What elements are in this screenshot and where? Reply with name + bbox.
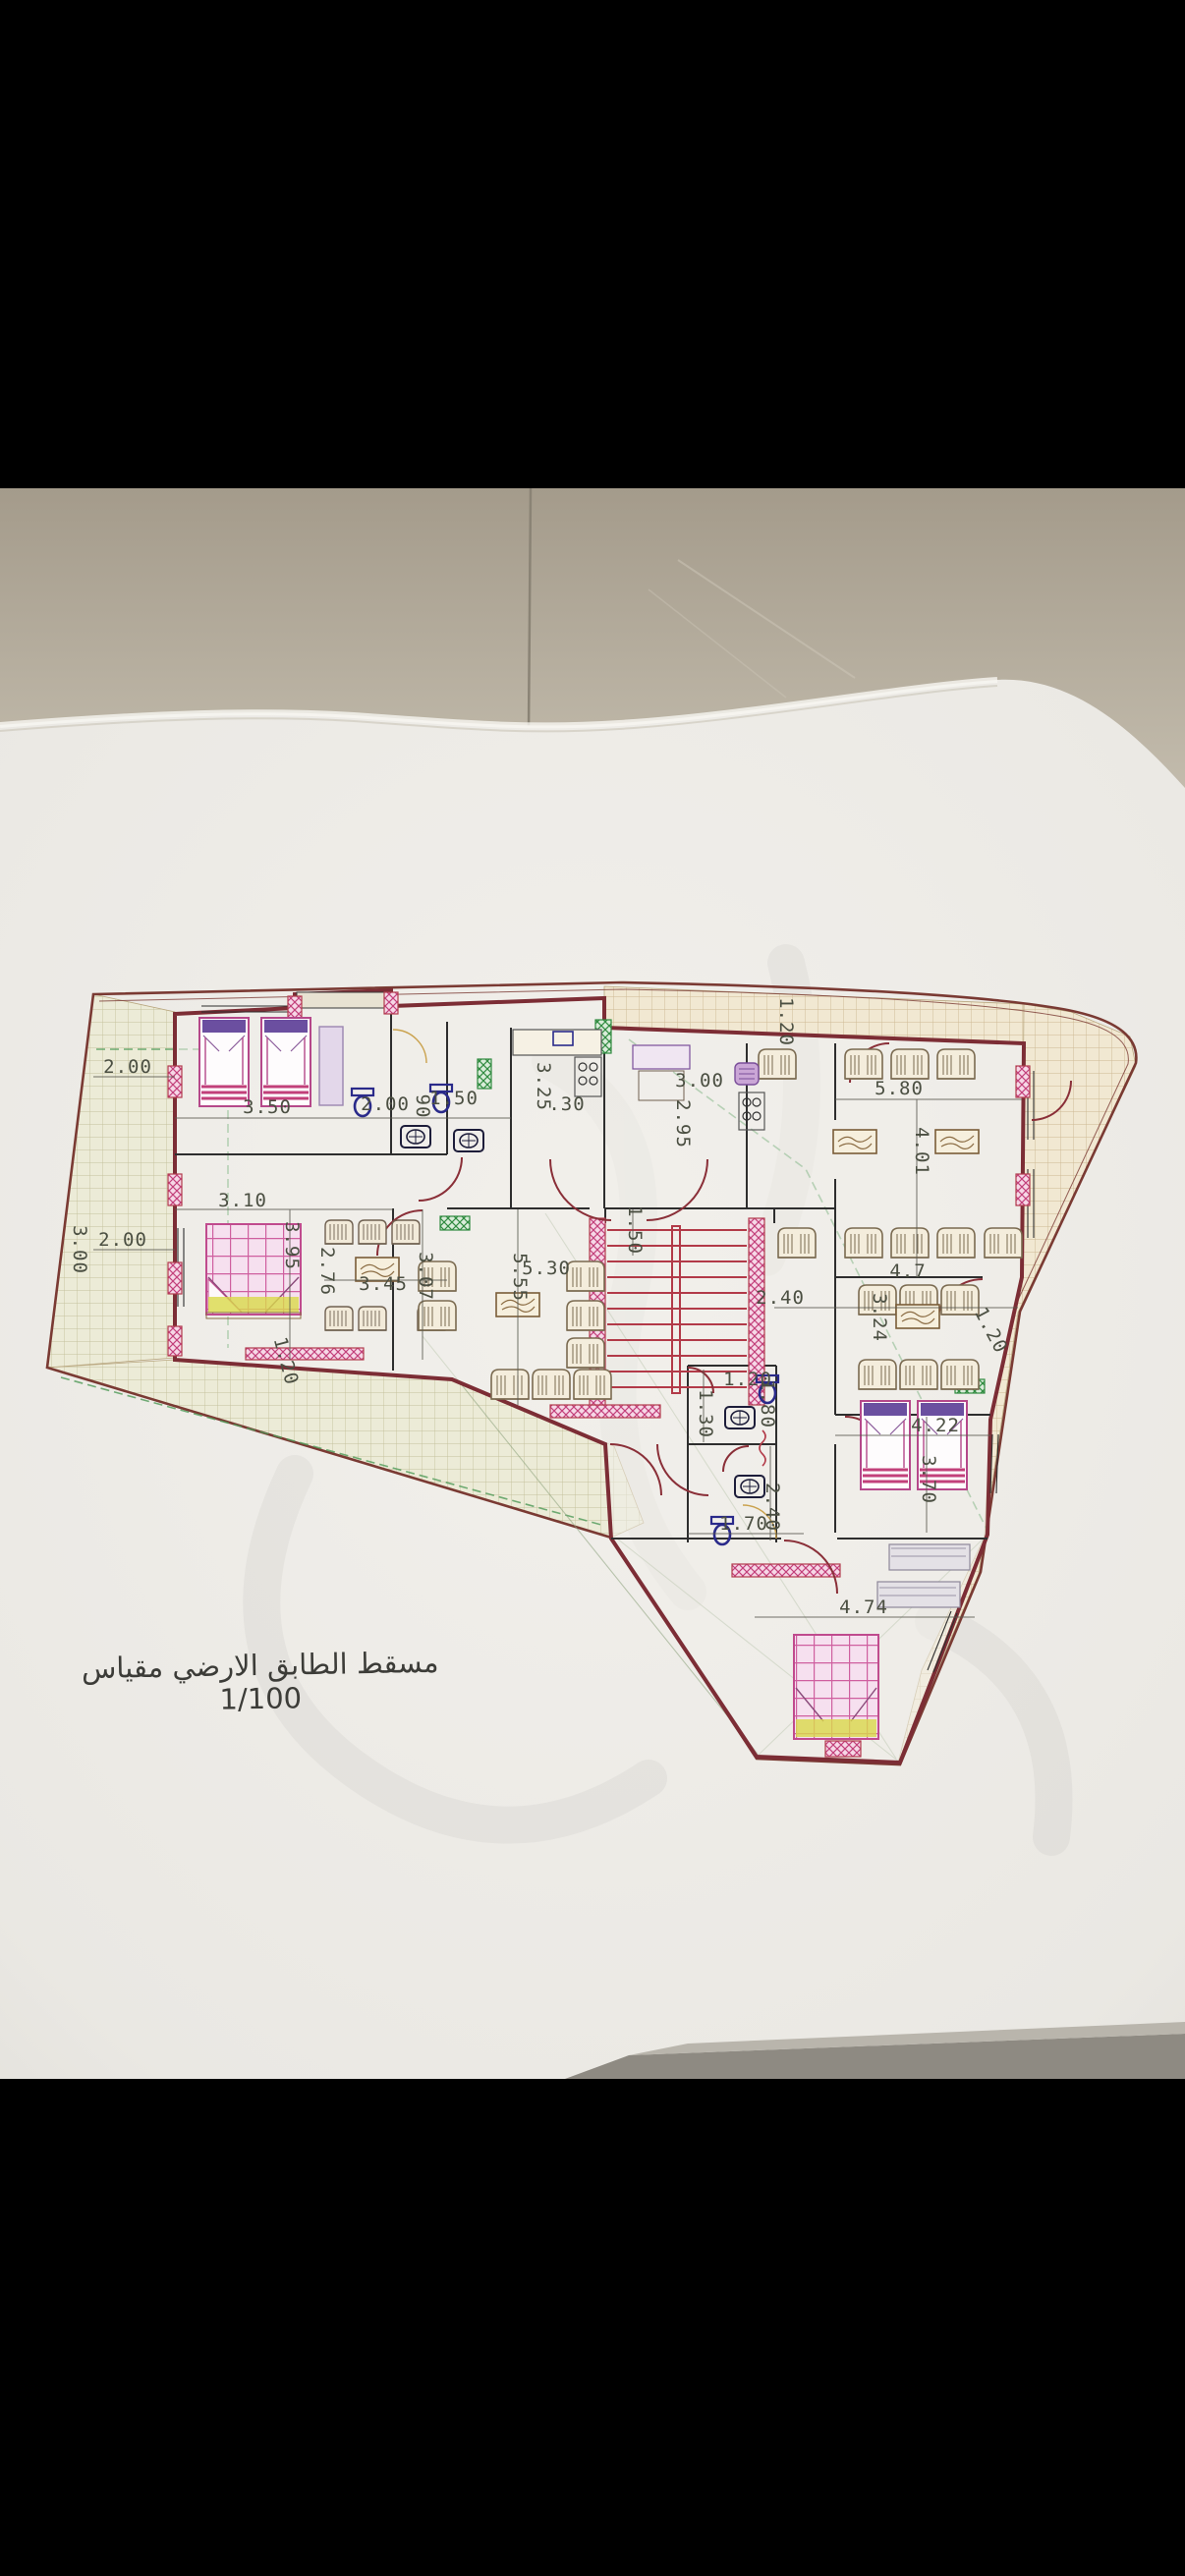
dimension-label: .30 [548,1093,585,1115]
plan-caption: مسقط الطابق الارضي مقياس 1/100 [48,1645,472,1718]
dimension-label: 5.80 [875,1078,924,1099]
bedroom-top-left [199,1018,343,1106]
dimension-label: 3.24 [869,1293,890,1342]
dimension-label: 1.50 [429,1088,479,1109]
dimension-label: 2.40 [756,1287,805,1309]
dimension-label: 3.10 [218,1190,267,1211]
dimension-label: 4.74 [839,1596,888,1618]
dimension-label: 3.70 [918,1455,939,1504]
entry-niche [297,992,389,1008]
dimension-label: 3.50 [243,1096,292,1118]
dimension-label: 1.20 [775,997,797,1046]
dimension-label: 3.45 [359,1273,408,1295]
phone-screenshot: 2.002.003.003.502.00901.503.25.303.002.9… [0,0,1185,2576]
dimension-label: 1.30 [695,1389,716,1438]
dimension-label: 4.7 [889,1260,926,1282]
dimension-label: 1.50 [624,1205,646,1255]
office-nook [735,1063,759,1085]
dimension-label: 4.22 [911,1415,960,1436]
dimension-label: 2.00 [98,1229,147,1251]
dimension-label: 5.30 [522,1258,571,1279]
dimension-label: 3.95 [281,1221,303,1270]
photo-of-floor-plan: 2.002.003.003.502.00901.503.25.303.002.9… [0,0,1185,2576]
dimension-label: 3.00 [675,1070,724,1092]
dimension-label: 4.01 [911,1127,932,1176]
dimension-label: 2.00 [361,1093,410,1115]
dimension-label: 2.00 [103,1056,152,1078]
dimension-label: 3.00 [69,1225,90,1274]
dimension-label: 2.76 [316,1247,338,1296]
dimension-label: 3.07 [415,1252,436,1301]
dimension-label: 1.80 [757,1379,778,1428]
dimension-label: 2.95 [672,1099,694,1148]
dimension-label: 1.70 [719,1513,768,1535]
dimension-label: 2.40 [762,1483,783,1532]
